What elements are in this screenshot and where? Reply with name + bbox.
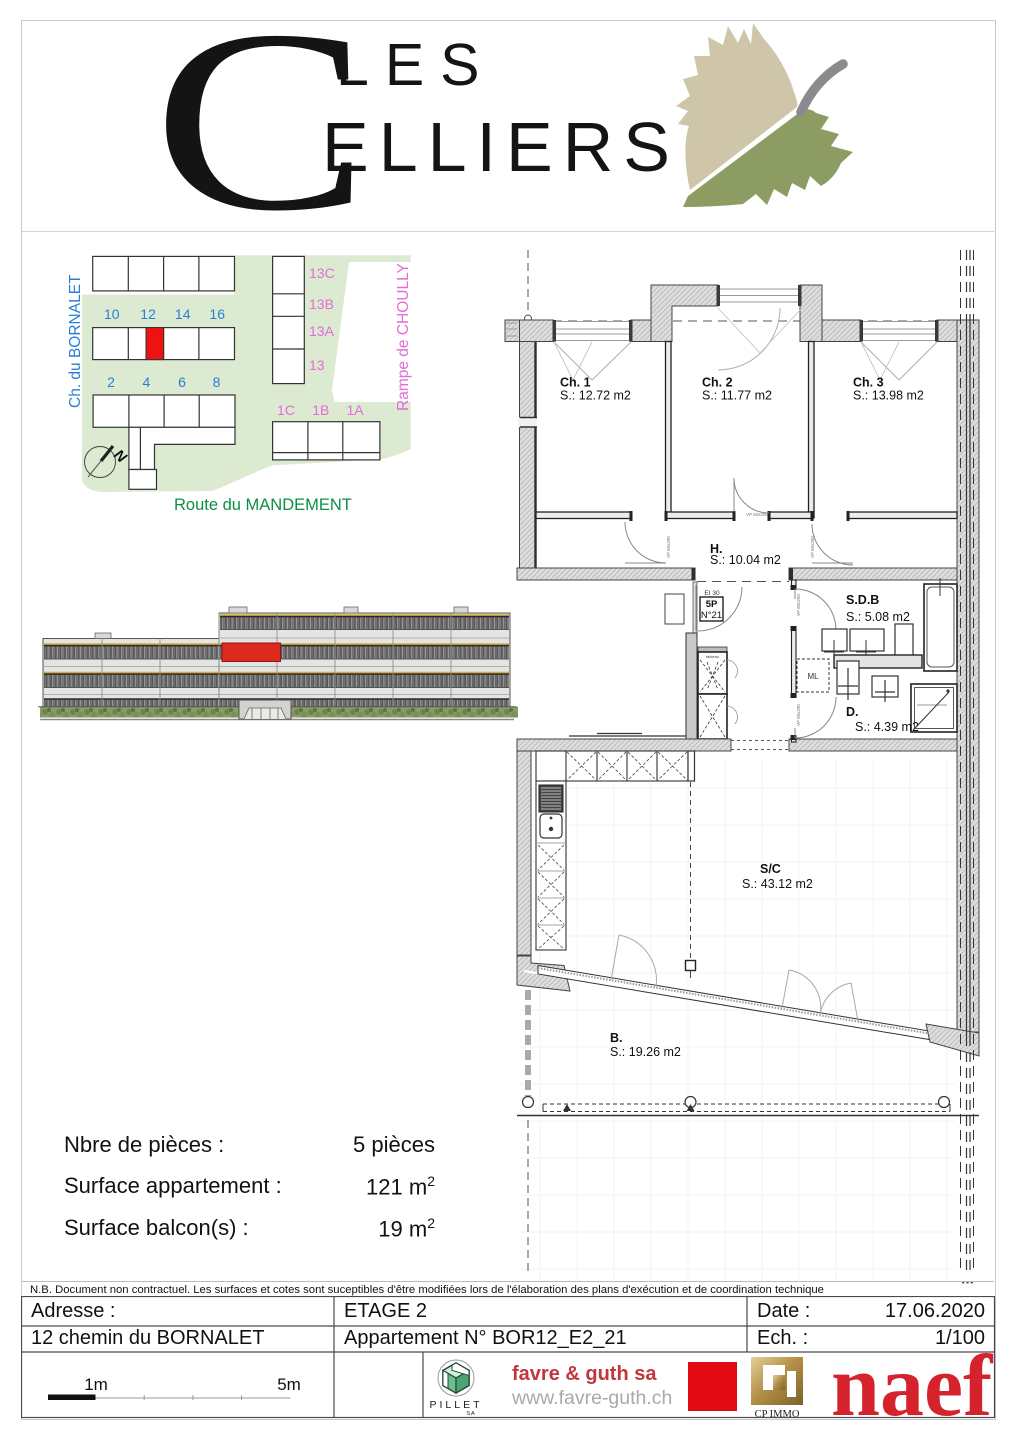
svg-text:14: 14 — [175, 306, 191, 322]
svg-text:Ch. du BORNALET: Ch. du BORNALET — [67, 274, 84, 408]
svg-text:S.: 13.98 m2: S.: 13.98 m2 — [853, 389, 924, 403]
svg-text:S.: 10.04 m2: S.: 10.04 m2 — [710, 553, 781, 567]
svg-text:1C: 1C — [277, 402, 295, 418]
svg-text:SA: SA — [466, 1411, 475, 1417]
svg-text:10: 10 — [104, 306, 120, 322]
svg-text:S.: 43.12 m2: S.: 43.12 m2 — [742, 877, 813, 891]
svg-text:Ch. 2: Ch. 2 — [702, 376, 733, 390]
svg-text:D.: D. — [846, 705, 859, 719]
svg-text:1m: 1m — [84, 1375, 108, 1394]
svg-text:4: 4 — [143, 374, 151, 390]
svg-text:VP 80x200: VP 80x200 — [746, 512, 768, 517]
svg-text:S.D.B: S.D.B — [846, 593, 879, 607]
svg-text:13A: 13A — [309, 323, 335, 339]
svg-text:12: 12 — [140, 306, 156, 322]
svg-text:PILLET: PILLET — [429, 1399, 482, 1411]
svg-text:8: 8 — [213, 374, 221, 390]
svg-text:13: 13 — [309, 357, 325, 373]
svg-text:tableau: tableau — [706, 654, 719, 659]
svg-text:S.: 11.77 m2: S.: 11.77 m2 — [702, 389, 772, 403]
svg-text:EI 30: EI 30 — [704, 590, 720, 597]
svg-text:ELLIERS: ELLIERS — [322, 108, 680, 186]
svg-text:6: 6 — [178, 374, 186, 390]
svg-text:S/C: S/C — [760, 862, 781, 876]
svg-text:Route du MANDEMENT: Route du MANDEMENT — [174, 496, 352, 514]
svg-text:VP 80x200: VP 80x200 — [796, 594, 801, 616]
svg-text:1A: 1A — [346, 402, 364, 418]
svg-text:S.: 19.26 m2: S.: 19.26 m2 — [610, 1045, 681, 1059]
svg-text:5m: 5m — [277, 1375, 301, 1394]
svg-text:5P: 5P — [706, 599, 718, 610]
svg-text:S.: 5.08 m2: S.: 5.08 m2 — [846, 610, 910, 624]
svg-text:13C: 13C — [309, 265, 335, 281]
svg-text:B.: B. — [610, 1031, 623, 1045]
svg-text:N°21: N°21 — [701, 610, 722, 621]
svg-text:Ch. 3: Ch. 3 — [853, 376, 884, 390]
svg-text:VP 80x200: VP 80x200 — [796, 704, 801, 726]
svg-text:LES: LES — [336, 32, 496, 98]
svg-text:16: 16 — [209, 306, 225, 322]
svg-text:1B: 1B — [312, 402, 329, 418]
svg-text:S.: 4.39 m2: S.: 4.39 m2 — [855, 720, 919, 734]
svg-text:VP 80x200: VP 80x200 — [666, 536, 671, 558]
svg-text:CP IMMO: CP IMMO — [755, 1409, 800, 1419]
svg-text:Rampe de CHOULLY: Rampe de CHOULLY — [395, 263, 412, 411]
svg-text:ML: ML — [807, 672, 819, 681]
svg-text:Ch. 1: Ch. 1 — [560, 376, 591, 390]
svg-text:13B: 13B — [309, 296, 334, 312]
svg-text:VP 80x200: VP 80x200 — [810, 536, 815, 558]
svg-text:2: 2 — [107, 374, 115, 390]
svg-text:S.: 12.72 m2: S.: 12.72 m2 — [560, 389, 631, 403]
